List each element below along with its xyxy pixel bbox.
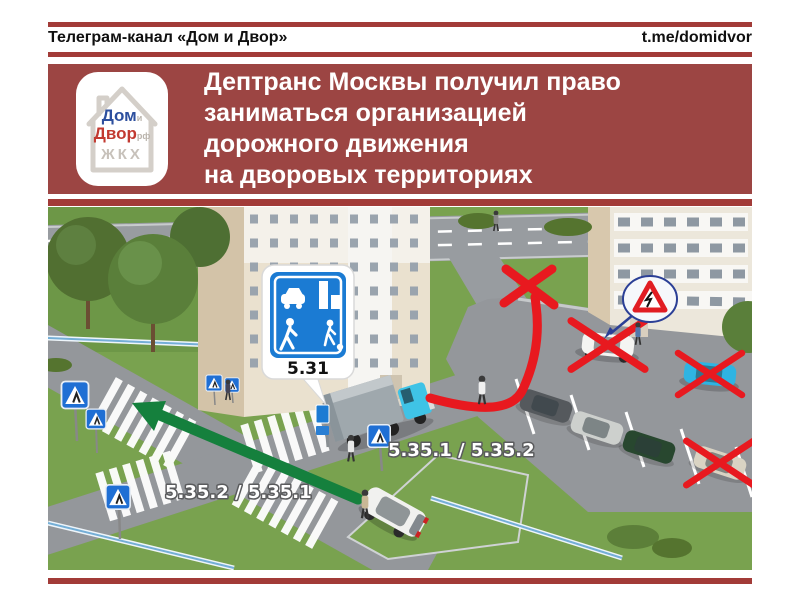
sign-531-icon — [270, 272, 346, 358]
footer-divider — [48, 578, 752, 584]
header-divider-top — [48, 22, 752, 27]
route-label-intersection: 5.35.2 / 5.35.1 — [165, 482, 312, 503]
title-line-4: на дворовых территориях — [204, 160, 621, 191]
title-line-3: дорожного движения — [204, 129, 621, 160]
banner-divider — [48, 199, 752, 206]
channel-url: t.me/domidvor — [642, 29, 752, 47]
channel-name: Телеграм-канал «Дом и Двор» — [48, 29, 287, 47]
telegram-post-card: Телеграм-канал «Дом и Двор» t.me/domidvo… — [0, 0, 800, 600]
route-label-near-truck: 5.35.1 / 5.35.2 — [388, 440, 535, 461]
logo-dom-i-dvor: Доми Дворрф ЖКХ — [76, 72, 168, 186]
pedestrian-crossing-sign-icon — [106, 485, 130, 509]
post-title: Дептранс Москвы получил право заниматься… — [204, 67, 621, 191]
title-line-1: Дептранс Москвы получил право — [204, 67, 621, 98]
header-divider-bottom — [48, 52, 752, 57]
logo-word-i: и — [137, 113, 143, 123]
title-line-2: заниматься организацией — [204, 98, 621, 129]
pedestrian-crossing-sign-icon — [62, 382, 89, 409]
sign-531-label: 5.31 — [287, 359, 329, 379]
logo-word-dom: Дом — [102, 106, 137, 125]
logo-word-dvor: Двор — [94, 124, 137, 143]
post-header: Телеграм-канал «Дом и Двор» t.me/domidvo… — [48, 29, 752, 47]
logo-text: Доми Дворрф ЖКХ — [76, 108, 168, 163]
traffic-scheme-illustration: 5.31 — [48, 207, 752, 570]
logo-caption-zhkh: ЖКХ — [76, 147, 168, 163]
pedestrian-crossing-sign-icon — [86, 409, 106, 429]
pedestrian-crossing-sign-icon — [368, 425, 391, 448]
street-scene: 5.31 — [48, 207, 752, 570]
logo-word-rf: рф — [137, 131, 150, 141]
title-banner: Доми Дворрф ЖКХ Дептранс Москвы получил … — [48, 64, 752, 194]
pedestrian-crossing-sign-icon — [206, 375, 222, 391]
